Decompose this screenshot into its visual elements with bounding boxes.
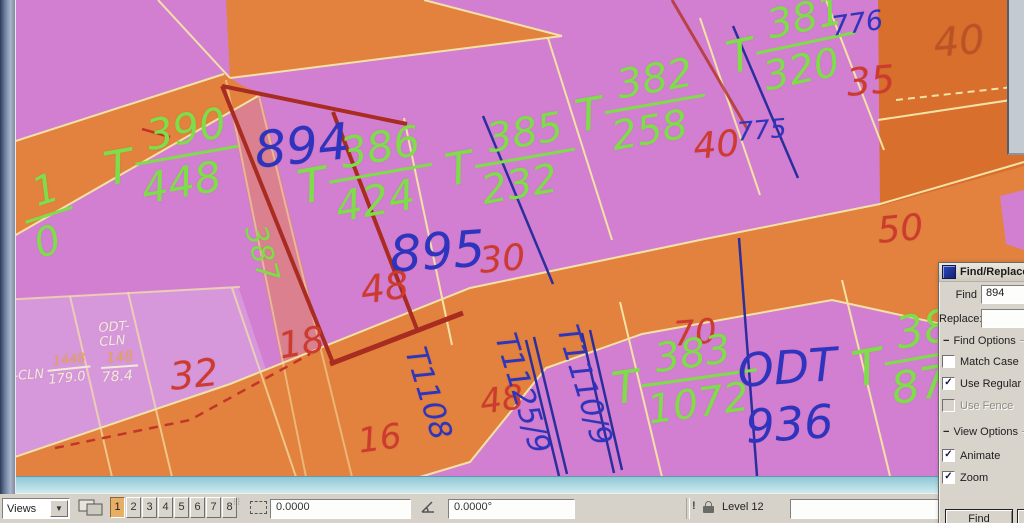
views-dropdown[interactable]: Views ▼: [2, 498, 70, 519]
toolbar-grip[interactable]: ⁝⁝: [233, 499, 241, 507]
use-fence-label: Use Fence: [960, 400, 1013, 412]
find-button[interactable]: Find: [945, 509, 1013, 523]
checkbox-icon: [942, 399, 955, 412]
screen: T390448894T386424T385232T382258T38132077…: [0, 0, 1024, 523]
use-regex-label: Use Regular E: [960, 378, 1024, 390]
find-replace-dialog: Find/Replace Find 894 Replace: − Find Op…: [938, 262, 1024, 523]
view-button-1[interactable]: 1: [110, 497, 125, 518]
angle-field[interactable]: 0.0000°: [448, 499, 575, 519]
use-fence-checkbox-row: Use Fence: [942, 399, 1013, 412]
zoom-checkbox-row[interactable]: ✓ Zoom: [942, 471, 988, 484]
animate-checkbox-row[interactable]: ✓ Animate: [942, 449, 1000, 462]
selection-rect-icon: [250, 501, 267, 514]
view-button-3[interactable]: 3: [142, 497, 157, 518]
match-case-label: Match Case: [960, 356, 1019, 368]
checkbox-icon[interactable]: ✓: [942, 471, 955, 484]
find-label: Find: [939, 289, 981, 301]
view-window-bottom-border: [0, 476, 1024, 494]
chevron-down-icon[interactable]: ▼: [50, 500, 68, 517]
use-regex-checkbox-row[interactable]: ✓ Use Regular E: [942, 377, 1024, 390]
partial-button[interactable]: [1017, 509, 1024, 523]
replace-input[interactable]: [981, 309, 1024, 328]
collapse-icon[interactable]: −: [943, 335, 949, 347]
view-number-buttons: 12345678: [110, 497, 238, 518]
alert-icon: !: [692, 500, 696, 512]
animate-label: Animate: [960, 450, 1000, 462]
checkbox-icon[interactable]: [942, 355, 955, 368]
view-options-section[interactable]: − View Options: [943, 426, 1024, 438]
view-button-7[interactable]: 7: [206, 497, 221, 518]
status-bar: Views ▼ 12345678 ⁝⁝ 0.0000 0.0000° ! Lev…: [0, 493, 1024, 523]
match-case-checkbox-row[interactable]: Match Case: [942, 355, 1019, 368]
red-diagonal-line: [672, 0, 748, 130]
replace-label: Replace:: [939, 313, 981, 325]
separator: [686, 498, 690, 519]
view-button-6[interactable]: 6: [190, 497, 205, 518]
view-button-4[interactable]: 4: [158, 497, 173, 518]
lock-icon[interactable]: [703, 501, 714, 513]
cascade-windows-icon[interactable]: [78, 499, 104, 516]
distance-field[interactable]: 0.0000: [270, 499, 411, 519]
view-button-2[interactable]: 2: [126, 497, 141, 518]
find-replace-icon: [942, 265, 956, 279]
checkbox-icon[interactable]: ✓: [942, 377, 955, 390]
angle-icon: [420, 500, 438, 514]
road-top-left: [0, 74, 258, 244]
dialog-title-bar[interactable]: Find/Replace: [939, 263, 1024, 282]
view-button-5[interactable]: 5: [174, 497, 189, 518]
window-left-frame: [0, 0, 16, 494]
map-viewport[interactable]: [0, 0, 1024, 477]
zoom-label: Zoom: [960, 472, 988, 484]
dialog-title: Find/Replace: [960, 266, 1024, 278]
collapse-icon[interactable]: −: [943, 426, 949, 438]
road-top: [226, 0, 562, 78]
status-extra-field[interactable]: [790, 499, 942, 519]
find-options-section[interactable]: − Find Options: [943, 335, 1024, 347]
active-level-indicator[interactable]: Level 12: [722, 501, 764, 513]
views-dropdown-label: Views: [3, 503, 49, 515]
checkbox-icon[interactable]: ✓: [942, 449, 955, 462]
window-right-panel-edge: [1007, 0, 1024, 155]
view-options-label: View Options: [953, 426, 1018, 438]
find-options-label: Find Options: [953, 335, 1015, 347]
find-input[interactable]: 894: [981, 285, 1024, 304]
